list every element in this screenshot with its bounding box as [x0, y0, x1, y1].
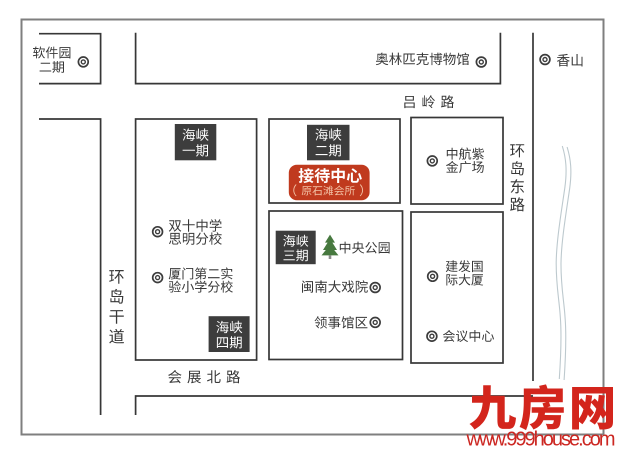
svg-text:www.999house.com: www.999house.com — [466, 429, 616, 451]
